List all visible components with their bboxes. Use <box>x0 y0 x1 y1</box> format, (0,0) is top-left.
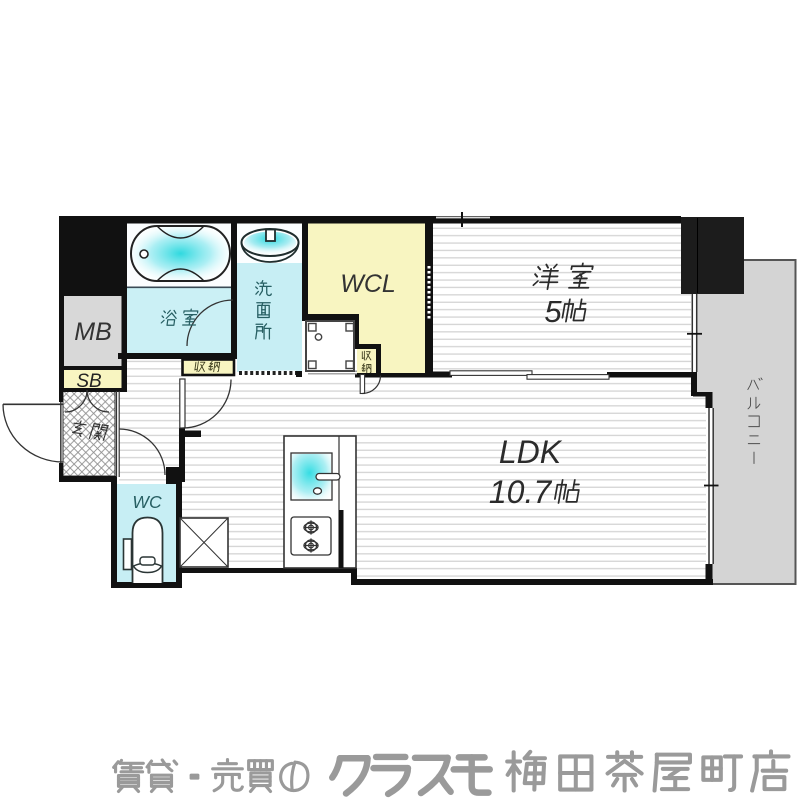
svg-text:5: 5 <box>544 294 562 329</box>
svg-text:LDK: LDK <box>499 434 563 470</box>
svg-text:MB: MB <box>74 318 112 346</box>
svg-text:10.7: 10.7 <box>489 474 552 510</box>
svg-text:WC: WC <box>132 492 162 512</box>
svg-text:WCL: WCL <box>340 270 396 298</box>
svg-text:SB: SB <box>76 371 102 392</box>
